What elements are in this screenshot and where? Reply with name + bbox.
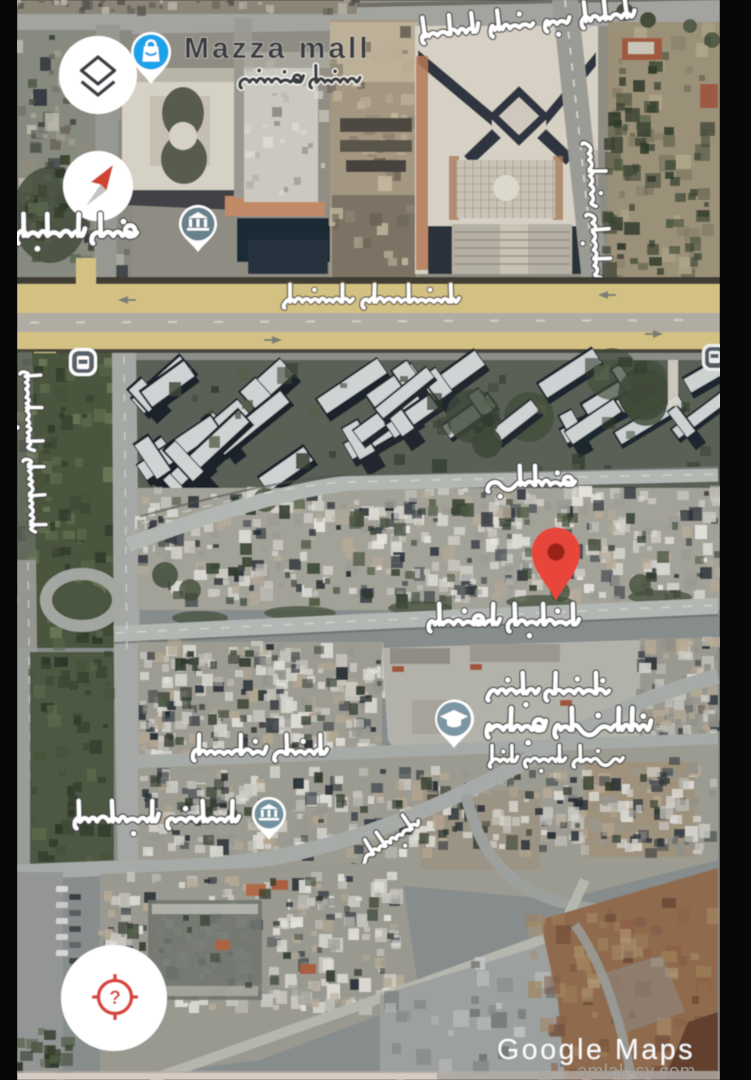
svg-text:amlak-sy.com: amlak-sy.com — [577, 1060, 696, 1080]
svg-text:Mazza mall: Mazza mall — [184, 32, 371, 65]
svg-text:?: ? — [109, 988, 121, 1009]
